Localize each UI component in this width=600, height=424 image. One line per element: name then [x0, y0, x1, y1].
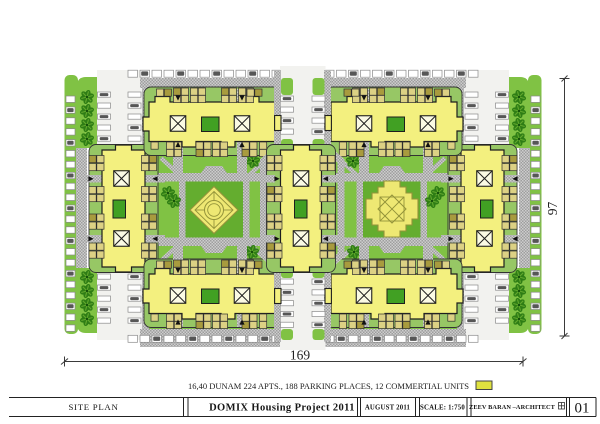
svg-text:169: 169 — [290, 348, 311, 363]
svg-text:SCALE: 1:750: SCALE: 1:750 — [420, 405, 465, 412]
svg-text:16,40 DUNAM 224 APTS., 188 PAR: 16,40 DUNAM 224 APTS., 188 PARKING PLACE… — [188, 381, 469, 391]
svg-text:ZEEV BARAN –ARCHITECT: ZEEV BARAN –ARCHITECT — [469, 404, 556, 411]
svg-text:97: 97 — [545, 202, 560, 216]
svg-text:DOMIX Housing Project 2011: DOMIX Housing Project 2011 — [209, 403, 355, 414]
svg-text:SITE PLAN: SITE PLAN — [68, 402, 118, 412]
svg-text:01: 01 — [575, 401, 590, 417]
svg-text:AUGUST 2011: AUGUST 2011 — [365, 405, 411, 412]
